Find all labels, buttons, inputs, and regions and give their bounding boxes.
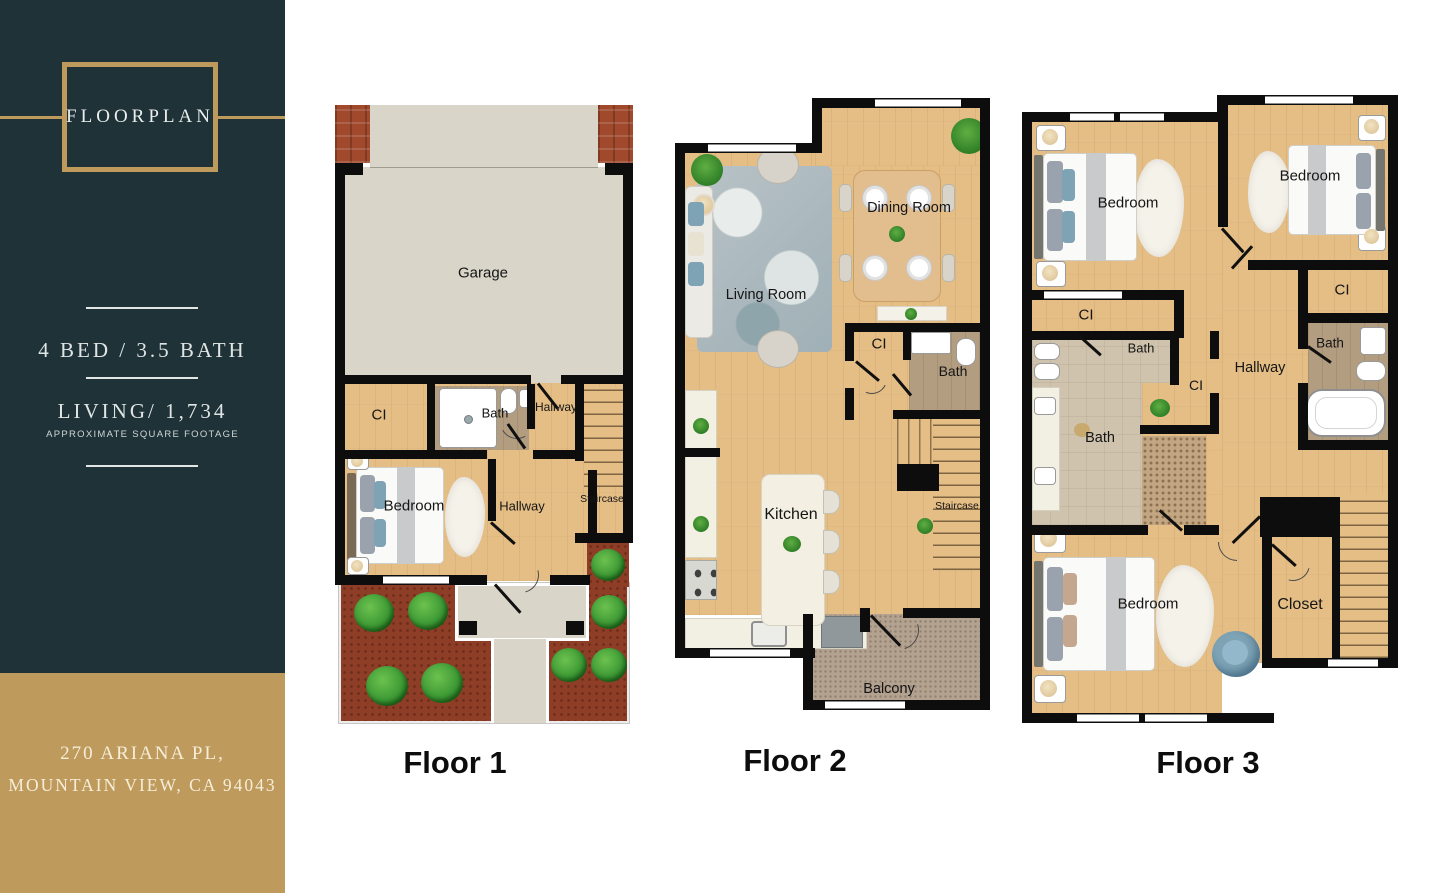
wall [1332, 537, 1340, 658]
living-rug [697, 166, 832, 352]
floor3-title: Floor 3 [1108, 745, 1308, 781]
table-centerpiece [889, 226, 905, 242]
wall [623, 163, 633, 543]
room-label-ci: CI [372, 407, 387, 424]
stair-landing [897, 464, 939, 491]
wall [1022, 525, 1148, 535]
bed-pillow [1047, 161, 1063, 203]
floor1-plan: Garage CI Bath Hallway Staircase Bedroom… [335, 105, 633, 795]
bed-bath-spec: 4 BED / 3.5 BATH [0, 338, 285, 363]
wall [1218, 105, 1228, 227]
wall [1140, 425, 1219, 434]
room-label-bedroom-master: Bedroom [1118, 596, 1179, 613]
wall [1022, 112, 1032, 723]
wall [675, 448, 720, 457]
window [1265, 96, 1353, 104]
sofa-pillow [688, 202, 704, 226]
cased-opening [1044, 291, 1122, 299]
logo-text: FLOORPLAN [66, 106, 214, 128]
lamp [1040, 680, 1057, 697]
room-label-kitchen: Kitchen [764, 506, 817, 524]
vanity-sink [1034, 467, 1056, 485]
wall [335, 375, 531, 384]
dining-chair [839, 184, 852, 212]
shower-mosaic [1142, 436, 1206, 525]
garden-bush [551, 648, 587, 682]
dining-chair [839, 254, 852, 282]
accent-pillow [1063, 615, 1077, 647]
window [1120, 113, 1164, 121]
bed-headboard [347, 473, 356, 561]
room-label-bath-upper: Bath [1128, 341, 1155, 356]
bath-plant [1150, 399, 1170, 417]
window [1328, 659, 1378, 667]
wall [1298, 313, 1398, 323]
sofa-pillow [688, 232, 704, 256]
stool [823, 530, 840, 554]
logo-frame: FLOORPLAN [62, 62, 218, 172]
address-line-2: MOUNTAIN VIEW, CA 94043 [0, 775, 285, 796]
rule-top [86, 307, 198, 309]
counter-plant [693, 516, 709, 532]
room-label-bath-lower: Bath [1085, 430, 1115, 446]
window [708, 144, 796, 152]
bed-headboard [1034, 561, 1043, 667]
wall [1248, 260, 1388, 270]
staircase-treads [933, 418, 980, 570]
garden-bush [366, 666, 408, 706]
rule-middle [86, 377, 198, 379]
bathtub-basin [1315, 397, 1377, 429]
garden-bush [354, 594, 394, 632]
bed-pillow [1047, 617, 1063, 661]
wall [1210, 331, 1219, 359]
garden-bush [591, 648, 627, 682]
window [1070, 113, 1114, 121]
lamp [351, 560, 363, 572]
stair-plant [917, 518, 933, 534]
room-label-bedroom-top-right: Bedroom [1280, 168, 1341, 185]
garage-door-line [370, 167, 598, 168]
lamp [1042, 129, 1058, 145]
window [825, 701, 905, 709]
garden-bush [421, 663, 463, 703]
window [1145, 714, 1207, 722]
room-label-ci-left: CI [1079, 307, 1094, 324]
lamp [1364, 119, 1379, 134]
floor2-title: Floor 2 [695, 743, 895, 779]
window [383, 576, 449, 584]
stair-rail [897, 418, 933, 464]
window [1077, 714, 1139, 722]
room-label-staircase: Staircase [935, 500, 979, 512]
room-label-closet: Closet [1277, 596, 1322, 614]
window [875, 99, 961, 107]
bed-pillow [360, 475, 375, 512]
toilet [1034, 363, 1060, 380]
room-label-balcony: Balcony [863, 681, 915, 697]
bed-blanket [1106, 557, 1126, 671]
wall [1388, 95, 1398, 668]
room-label-ci-middle: CI [1189, 377, 1203, 393]
lamp [1364, 229, 1379, 244]
bed-headboard [1376, 149, 1385, 231]
address-line-1: 270 ARIANA PL, [0, 743, 285, 765]
bed-blanket [1308, 145, 1326, 235]
room-label-ci-right: CI [1335, 282, 1350, 299]
bathtub [1306, 389, 1386, 437]
wall [845, 323, 854, 361]
wall [575, 533, 633, 543]
room-label-dining-room: Dining Room [867, 200, 951, 216]
bed-pillow [360, 517, 375, 554]
address-band: 270 ARIANA PL, MOUNTAIN VIEW, CA 94043 [0, 673, 285, 893]
bed-pillow [1047, 209, 1063, 251]
dining-chair [942, 254, 955, 282]
room-label-hallway: Hallway [1235, 360, 1286, 376]
room-label-hallway-upper: Hallway [535, 400, 577, 414]
wall [1298, 323, 1308, 349]
wall [561, 375, 633, 384]
wall [575, 375, 584, 461]
room-label-living-room: Living Room [726, 287, 807, 303]
wall [550, 575, 590, 585]
console-plant [905, 308, 917, 320]
room-label-ci: CI [872, 336, 887, 353]
floor2-plan: Living Room Dining Room CI Bath Kitchen … [675, 98, 990, 793]
accent-pillow [1062, 211, 1075, 243]
dishwasher [821, 616, 863, 648]
wall [1184, 525, 1219, 535]
counter-plant [693, 418, 709, 434]
accent-chair-seat [1222, 640, 1248, 665]
bed-pillow [1356, 153, 1371, 189]
room-label-bedroom-top-left: Bedroom [1098, 195, 1159, 212]
vanity-sink [1034, 397, 1056, 415]
staircase-treads [1340, 493, 1388, 658]
bed-blanket [397, 467, 415, 564]
island-plant [783, 536, 801, 552]
toilet [1356, 361, 1386, 381]
wall [1298, 440, 1398, 450]
wall [588, 470, 597, 542]
accent-chair [1212, 631, 1260, 677]
living-note: APPROXIMATE SQUARE FOOTAGE [0, 429, 285, 440]
wall [335, 450, 487, 459]
room-label-hallway-lower: Hallway [499, 499, 545, 514]
room-label-staircase: Staircase [580, 493, 624, 505]
toilet [956, 338, 976, 366]
bath-sink [1360, 327, 1386, 355]
bed-headboard [1034, 155, 1043, 259]
rule-bottom [86, 465, 198, 467]
wall [980, 98, 990, 710]
wall [845, 323, 990, 332]
kitchen-counter-left [685, 390, 717, 558]
wall [803, 614, 813, 709]
stool [823, 490, 840, 514]
place-setting [907, 256, 931, 280]
wall [1262, 537, 1272, 663]
wall [335, 163, 345, 585]
wall [1022, 331, 1179, 340]
bath-sink [911, 332, 951, 354]
shower-drain [464, 415, 473, 424]
patio-post [566, 621, 584, 635]
bed-pillow [1356, 193, 1371, 229]
armchair [757, 330, 799, 368]
room-label-garage: Garage [458, 265, 508, 282]
wall [488, 459, 496, 521]
wall [845, 388, 854, 420]
wall [1210, 393, 1219, 434]
room-label-bedroom: Bedroom [384, 498, 445, 515]
sofa-pillow [688, 262, 704, 286]
wall [675, 143, 685, 658]
accent-pillow [374, 519, 386, 547]
stove [685, 560, 717, 600]
floor1-title: Floor 1 [355, 745, 555, 781]
room-label-bath: Bath [482, 406, 509, 421]
potted-plant [691, 154, 723, 186]
stool [823, 570, 840, 594]
sidebar: FLOORPLAN 4 BED / 3.5 BATH LIVING/ 1,734… [0, 0, 285, 893]
floor3-plan: Bedroom Bedroom CI CI Bath Bath Hallway … [1022, 95, 1398, 795]
place-setting [863, 256, 887, 280]
lamp [1042, 265, 1058, 281]
garden-bush [408, 592, 448, 630]
accent-pillow [1063, 573, 1077, 605]
driveway [370, 105, 598, 167]
garden-path [491, 639, 549, 723]
garden-bush [591, 595, 627, 629]
window [710, 649, 790, 657]
wall [903, 332, 911, 360]
wall [860, 608, 870, 632]
brick-planter [598, 105, 633, 163]
living-spec: LIVING/ 1,734 [0, 399, 285, 424]
bed-pillow [1047, 567, 1063, 611]
accent-pillow [1062, 169, 1075, 201]
patio-post [459, 621, 477, 635]
toilet [1034, 343, 1060, 360]
room-label-bath-right: Bath [1316, 336, 1344, 351]
wall [1170, 331, 1179, 385]
brick-planter [335, 105, 370, 163]
wall [427, 384, 435, 450]
room-label-bath: Bath [939, 363, 968, 379]
wall [893, 410, 990, 419]
garden-bush [591, 549, 625, 581]
stair-landing [1260, 497, 1340, 537]
